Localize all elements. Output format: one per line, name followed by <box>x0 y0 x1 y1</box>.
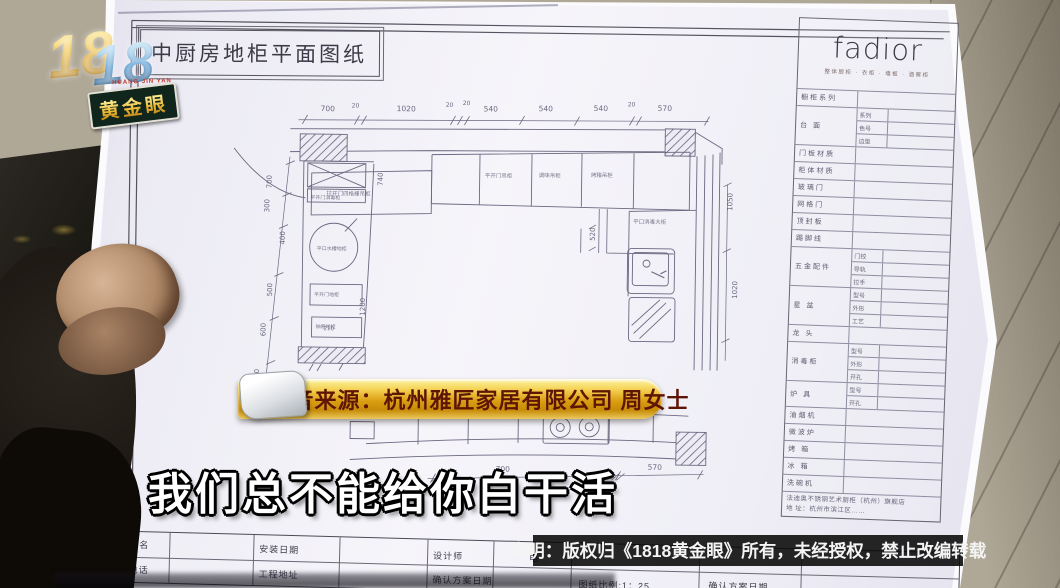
spec-sub-label: 边型 <box>856 134 887 147</box>
dim-left: 400 <box>279 231 287 244</box>
spec-sub-label: 门铰 <box>852 249 883 262</box>
cell-designer: 设计师 <box>433 549 463 563</box>
dim-inner: 1020 <box>731 281 739 299</box>
dim-left: 700 <box>266 175 274 188</box>
spec-sub-label: 外形 <box>848 357 879 370</box>
cabinet-label: 烤箱吊柜 <box>591 171 614 179</box>
cabinet-label: 平开门吊柜 <box>485 171 513 179</box>
dim-inner: 740 <box>377 172 385 185</box>
spec-row-label: 台 面 <box>795 106 857 146</box>
spec-row-label: 炉 具 <box>786 381 848 408</box>
spec-row-label: 冰 箱 <box>783 458 845 476</box>
spec-sub-label: 型号 <box>847 383 878 396</box>
spec-row-label: 网格门 <box>793 196 855 214</box>
copyright-text: 声明：版权归《1818黄金眼》所有，未经授权，禁止改编转载 <box>510 538 986 563</box>
spec-rows: 橱柜系列台 面系列色号边型门板材质柜体材质玻璃门网格门顶封板踢脚线五金配件门铰导… <box>783 89 956 497</box>
dim-bottom: 570 <box>648 463 663 472</box>
spec-row-label: 消毒柜 <box>787 342 849 382</box>
cabinet-label: 平口消毒大柜 <box>633 217 667 225</box>
cabinet-label: 平开门地柜 <box>314 291 339 298</box>
spec-row-label: 洗碗机 <box>783 475 845 493</box>
spec-sub-label: 拉手 <box>851 275 882 288</box>
spec-sub-label: 开孔 <box>847 396 878 409</box>
logo-badge-text: 黄金眼 <box>98 93 169 123</box>
cabinet-label: 调味吊柜 <box>539 171 562 179</box>
dim-top: 570 <box>658 104 673 113</box>
spec-sub-label: 系列 <box>857 108 888 121</box>
dim-top: 1020 <box>397 104 416 113</box>
spec-sub-label: 型号 <box>851 288 882 301</box>
cell-confirm-date2: 确认方案日期 <box>708 579 768 588</box>
spec-row: 五金配件门铰导轨拉手 <box>790 247 949 292</box>
cell-install-date: 安装日期 <box>259 542 299 556</box>
dim-top: 20 <box>628 101 636 108</box>
dim-top: 540 <box>539 104 554 113</box>
copyright-bar: 声明：版权归《1818黄金眼》所有，未经授权，禁止改编转载 <box>533 535 963 566</box>
brand-box: fadior 整体厨柜 · 衣柜 · 墙板 · 酒窖柜 <box>797 18 957 95</box>
spec-sub-label: 色号 <box>857 121 888 134</box>
subtitle: 我们总不能给你白干活 <box>148 458 618 522</box>
tv-frame: 700 20 1020 20 20 540 540 540 20 570 <box>0 0 1060 588</box>
spec-row-label: 星 盆 <box>789 286 851 326</box>
dim-top: 700 <box>321 104 336 113</box>
station-logo: 18 18 HUANG JIN YAN 黄金眼 <box>38 19 192 136</box>
dim-top: 20 <box>446 102 454 109</box>
brand-tagline: 整体厨柜 · 衣柜 · 墙板 · 酒窖柜 <box>824 67 929 79</box>
source-banner-text: 声音来源：杭州雅匠家居有限公司 周女士 <box>268 383 689 415</box>
dim-inner: 1200 <box>359 298 367 316</box>
dim-left: 500 <box>266 283 274 296</box>
spec-row-label: 油烟机 <box>785 407 847 425</box>
spec-row-label: 柜体材质 <box>794 162 856 180</box>
banner-scroll-tab <box>238 370 307 420</box>
spec-column: fadior 整体厨柜 · 衣柜 · 墙板 · 酒窖柜 橱柜系列台 面系列色号边… <box>781 17 959 522</box>
dim-left: 600 <box>259 323 267 336</box>
spec-row-label: 橱柜系列 <box>797 89 859 107</box>
paper-shadow <box>55 573 615 588</box>
fadior-logo: fadior <box>832 33 923 65</box>
spec-row: 台 面系列色号边型 <box>795 106 954 151</box>
spec-row-label: 门板材质 <box>795 145 857 163</box>
cabinet-label: 抽屉地柜 <box>316 323 336 330</box>
spec-row: 星 盆型号外形工艺 <box>789 286 948 331</box>
dim-top: 20 <box>463 100 471 107</box>
spec-sub-label: 导轨 <box>852 262 883 275</box>
dim-left: 300 <box>263 199 271 212</box>
spec-row-label: 五金配件 <box>790 247 852 287</box>
dim-top: 20 <box>352 102 360 109</box>
spec-sub-label: 工艺 <box>850 314 881 327</box>
spec-row-label: 龙 头 <box>788 325 850 343</box>
cabinet-label: 平口水槽地柜 <box>317 245 347 252</box>
spec-row-label: 踢脚线 <box>792 230 854 248</box>
spec-row-label: 玻璃门 <box>794 179 856 197</box>
spec-sub-label: 开孔 <box>848 370 879 383</box>
spec-sub-label: 外形 <box>850 301 881 314</box>
spec-row-label: 烤 箱 <box>784 441 846 459</box>
spec-row: 消毒柜型号外形开孔 <box>787 342 946 387</box>
dim-top: 540 <box>594 104 609 113</box>
cabinet-label: 平开门消毒柜 <box>310 194 340 201</box>
spec-sub-label: 型号 <box>849 344 880 357</box>
dim-inner: 520 <box>589 227 597 240</box>
spec-row-label: 微波炉 <box>785 424 847 442</box>
spec-row-label: 顶封板 <box>792 213 854 231</box>
dim-top: 540 <box>484 104 499 113</box>
